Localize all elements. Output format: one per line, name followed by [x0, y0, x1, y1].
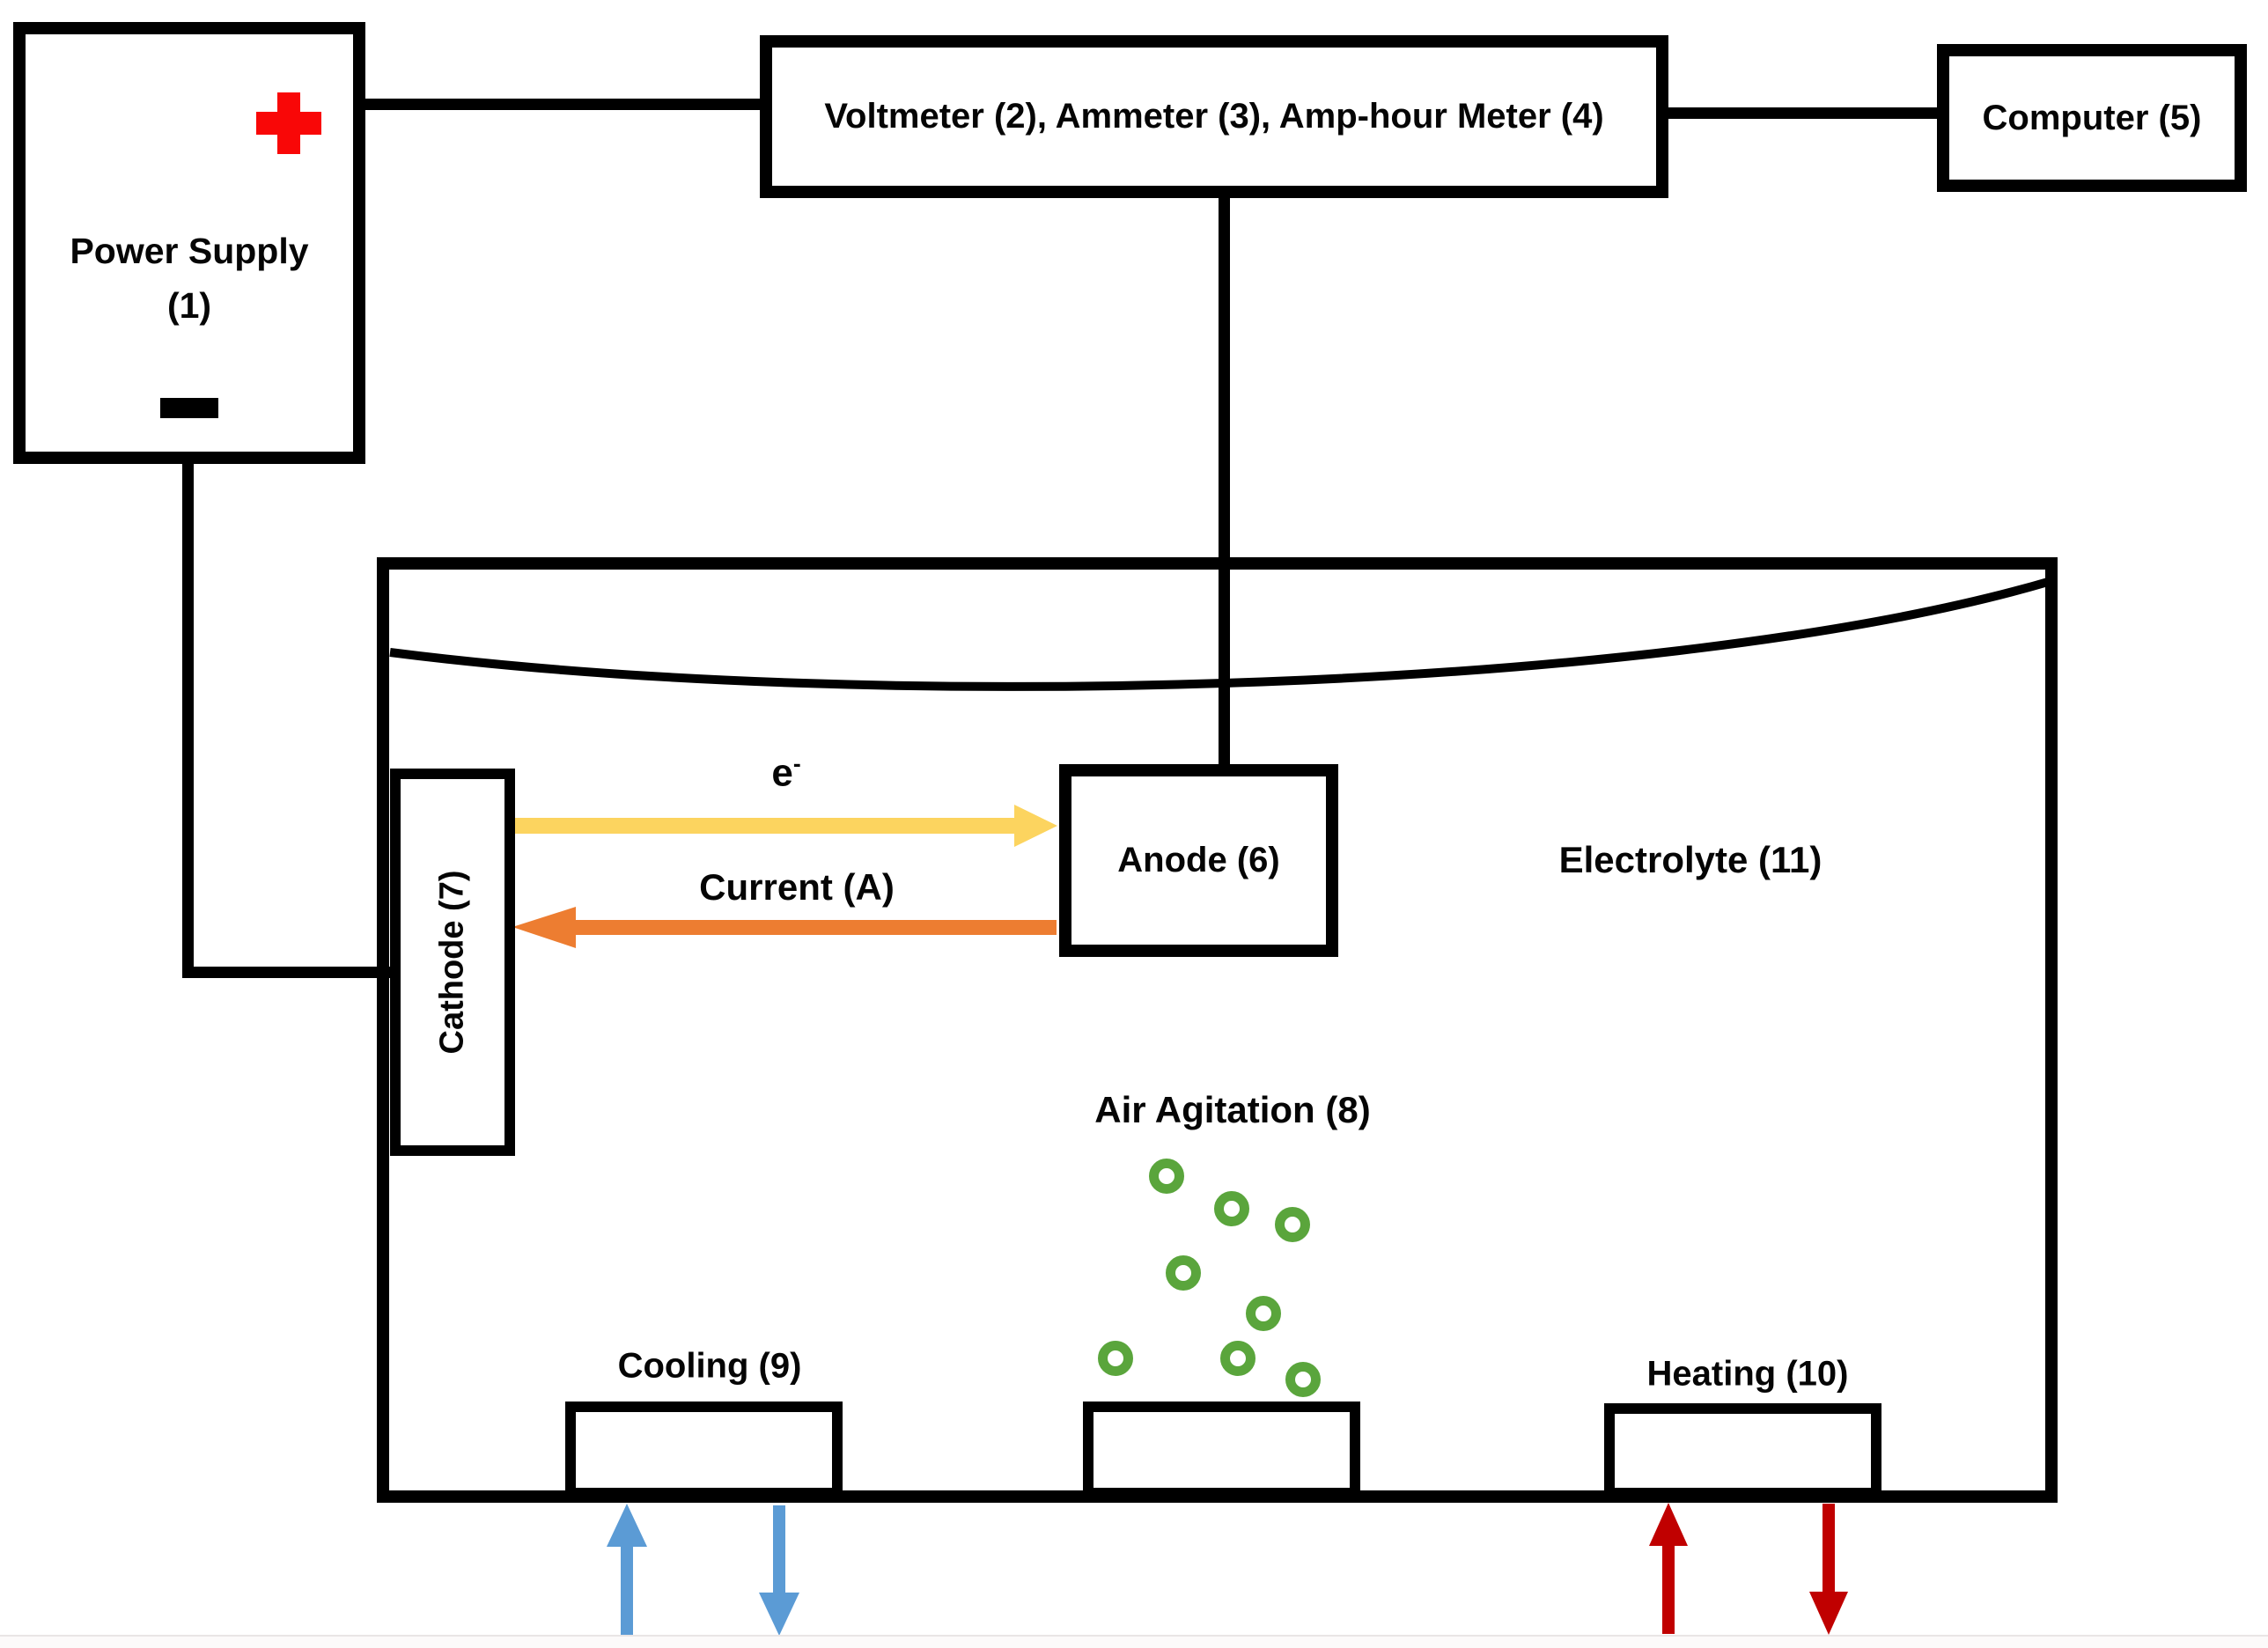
air-sparger-box: [1083, 1402, 1360, 1498]
electrolyte-surface-line: [390, 582, 2048, 687]
heating-label: Heating (10): [1647, 1355, 1849, 1394]
positive-terminal-icon: [256, 92, 321, 154]
cooling-outflow-arrow: [759, 1505, 799, 1636]
power-supply-box: Power Supply (1): [13, 22, 365, 464]
cathode-label: Cathode (7): [434, 871, 472, 1055]
meter-box: Voltmeter (2), Ammeter (3), Amp-hour Met…: [760, 35, 1668, 198]
bubble-icon: [1251, 1301, 1277, 1327]
electron-flow-label: e-: [771, 751, 800, 796]
bubble-icon: [1171, 1261, 1197, 1286]
electrolyte-label: Electrolyte (11): [1559, 839, 1822, 881]
power-supply-label: Power Supply: [26, 224, 353, 278]
cooling-box: [565, 1402, 843, 1498]
electroplating-diagram: Power Supply (1) Voltmeter (2), Ammeter …: [0, 0, 2268, 1648]
tank-bottom-edge: [377, 1490, 2058, 1503]
power-supply-number: (1): [26, 278, 353, 333]
bubble-icon: [1280, 1212, 1306, 1238]
cooling-label: Cooling (9): [618, 1347, 802, 1387]
electron-flow-arrow: [515, 805, 1057, 847]
heating-box: [1604, 1403, 1881, 1498]
bubble-icon: [1219, 1196, 1245, 1222]
cooling-inflow-arrow: [607, 1504, 647, 1635]
computer-label: Computer (5): [1983, 99, 2202, 138]
bubble-icon: [1291, 1367, 1316, 1393]
page-bottom-strip: [0, 1637, 2268, 1648]
anode-label: Anode (6): [1117, 841, 1279, 880]
current-arrow: [512, 907, 1057, 948]
anode-box: Anode (6): [1059, 764, 1338, 957]
bubble-icon: [1226, 1346, 1251, 1372]
heating-inflow-arrow: [1649, 1503, 1688, 1634]
bubble-icon: [1103, 1346, 1129, 1372]
air-bubbles: [1103, 1164, 1316, 1393]
computer-box: Computer (5): [1937, 44, 2247, 192]
bubble-icon: [1154, 1164, 1180, 1189]
negative-terminal-icon: [160, 398, 218, 418]
meter-label: Voltmeter (2), Ammeter (3), Amp-hour Met…: [824, 97, 1603, 136]
heating-outflow-arrow: [1809, 1504, 1848, 1635]
air-agitation-label: Air Agitation (8): [1094, 1089, 1370, 1131]
current-label: Current (A): [699, 866, 895, 909]
